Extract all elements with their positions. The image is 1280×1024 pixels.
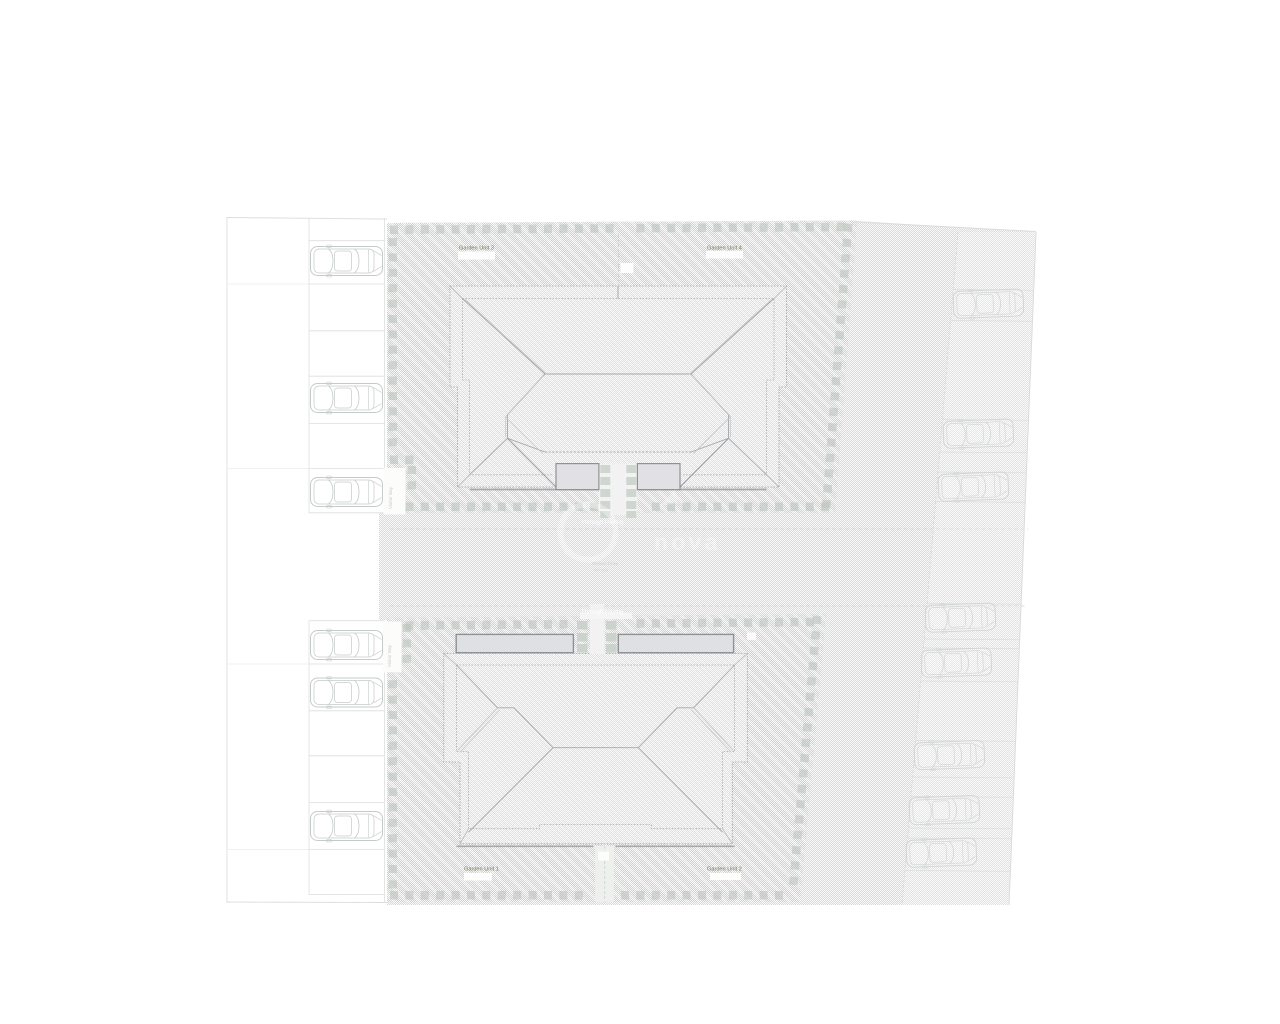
svg-text:Garden Unit 3: Garden Unit 3 xyxy=(459,246,494,252)
svg-text:Visitor Bay: Visitor Bay xyxy=(387,644,392,667)
svg-text:Visitor Bay: Visitor Bay xyxy=(388,486,393,509)
svg-text:Garden Unit 1: Garden Unit 1 xyxy=(464,867,499,873)
svg-text:Access: Access xyxy=(594,568,609,573)
svg-text:Through Paving: Through Paving xyxy=(581,610,623,616)
svg-text:nova: nova xyxy=(654,529,720,555)
svg-text:Garden Unit 4: Garden Unit 4 xyxy=(707,246,742,252)
svg-text:Garden Unit 2: Garden Unit 2 xyxy=(707,867,742,873)
svg-text:Shared Drive: Shared Drive xyxy=(592,561,619,566)
